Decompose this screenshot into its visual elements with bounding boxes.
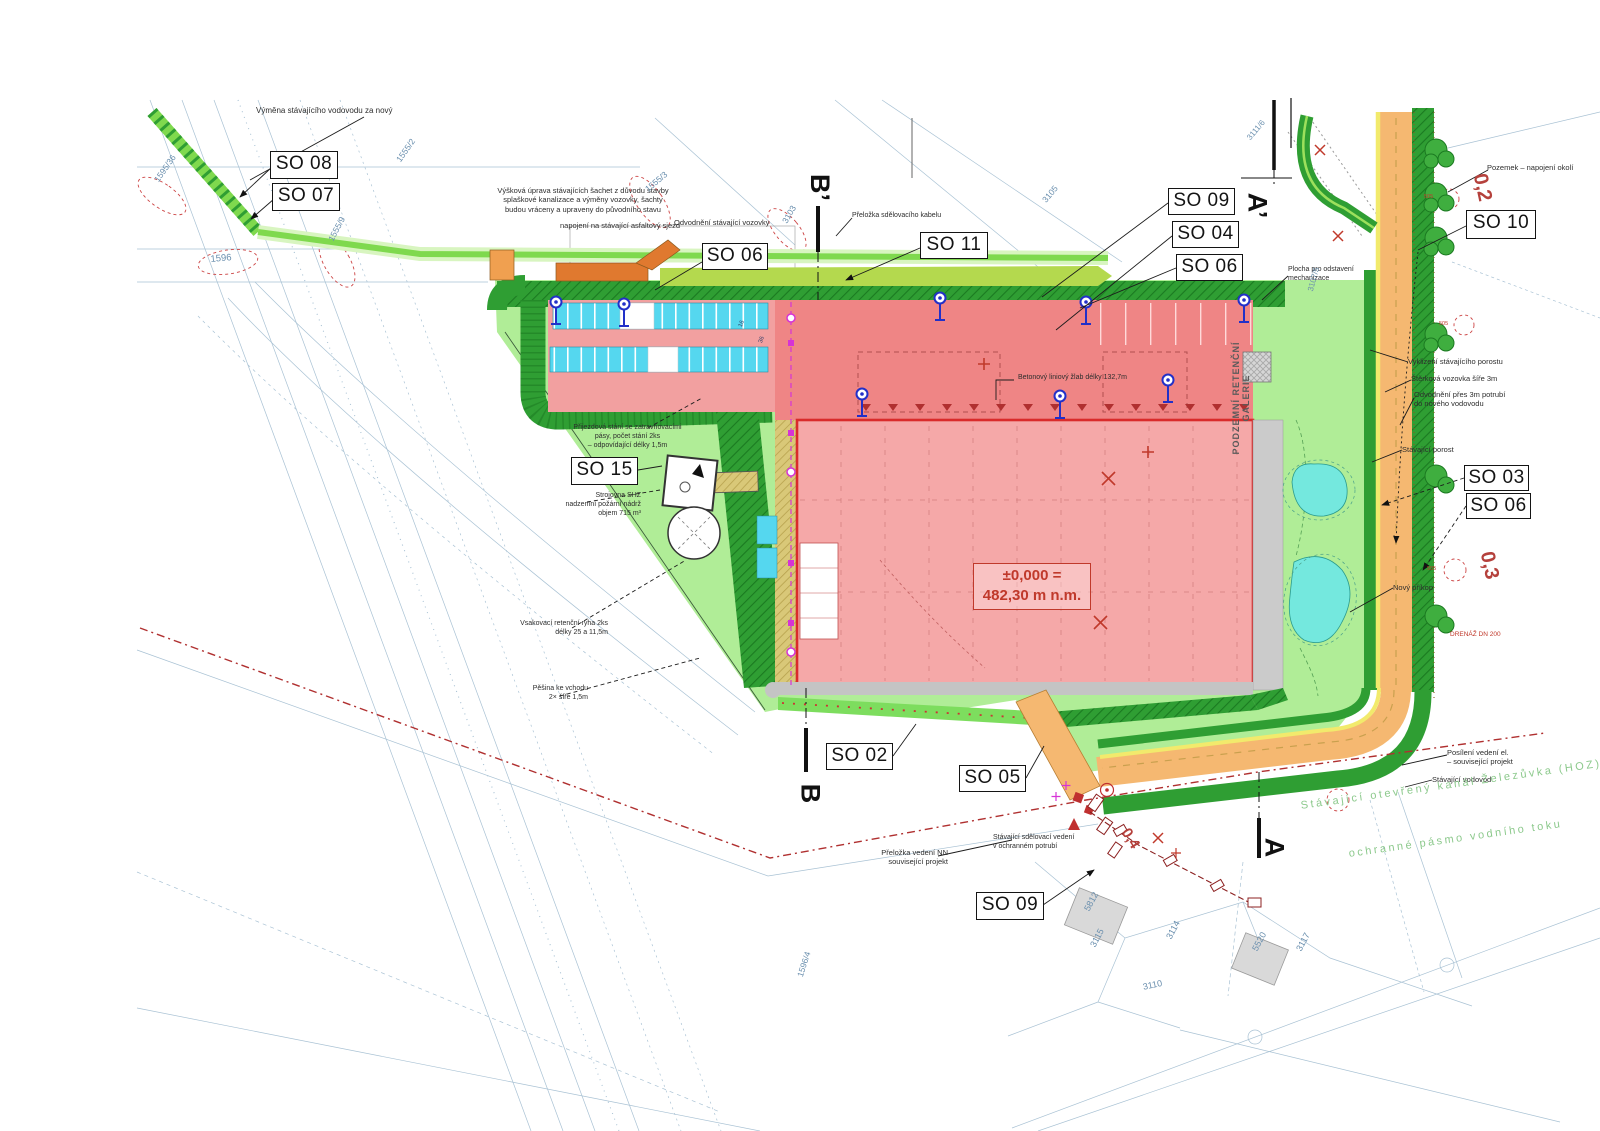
parcel-number: 3114 (1164, 919, 1182, 941)
annotation: 16 (738, 320, 747, 329)
building-vertical-text: PODZEMNÍ RETENČNÍ GALERIE (1231, 317, 1251, 479)
annotation: Přeložka sdělovacího kabelu (852, 212, 941, 221)
elevation-line1: ±0,000 = (977, 566, 1087, 586)
annotation-line: 505 (1439, 321, 1448, 328)
annotation: Výměna stávajícího vodovodu za nový (256, 106, 393, 116)
parcel-number: 3110 (1142, 978, 1163, 992)
annotation-line: objem 715 m³ (545, 510, 641, 519)
parcel-number: 1555/9 (326, 215, 347, 243)
parcel-number: 1596/4 (795, 950, 813, 978)
annotation: Posílení vedení el.– související projekt (1447, 748, 1513, 767)
annotation: 505 (1424, 194, 1433, 201)
annotation-line: Pozemek – napojení okolí (1487, 163, 1573, 172)
parcel-number: 1596 (210, 252, 232, 265)
label-so-09b: SO 09 (976, 892, 1044, 920)
annotation-line: – související projekt (1447, 757, 1513, 766)
annotation: Odvodnění přes 3m potrubído nového vodov… (1414, 390, 1505, 409)
annotation-line: 36 (758, 336, 767, 345)
label-so-02: SO 02 (826, 743, 893, 770)
annotation-line: Přeložka sdělovacího kabelu (852, 212, 941, 221)
section-marker-b-prime: B’ (804, 174, 835, 201)
watercourse-note: ochranné pásmo vodního toku (1348, 818, 1563, 860)
annotation: DRENÁŽ DN 200 (1450, 631, 1501, 639)
annotation-line: Odvodnění přes 3m potrubí (1414, 390, 1505, 399)
label-so-06c: SO 06 (1466, 493, 1531, 519)
annotation: napojení na stávající asfaltový sjezd (560, 221, 680, 230)
annotation: Pěšina ke vchodu2× šíře 1,5m (468, 685, 588, 703)
parcel-number: 3117 (1294, 931, 1312, 953)
label-overlay: ±0,000 = 482,30 m n.m. PODZEMNÍ RETENČNÍ… (0, 0, 1600, 1131)
annotation-line: Nový příkop (1393, 583, 1433, 592)
parcel-number: 3105 (1040, 184, 1060, 205)
elevation-line2: 482,30 m n.m. (977, 586, 1087, 606)
annotation-line: v ochranném potrubí (993, 843, 1074, 852)
annotation-line: 2× šíře 1,5m (468, 694, 588, 703)
annotation-line: Výměna stávajícího vodovodu za nový (256, 106, 393, 116)
annotation-line: Posílení vedení el. (1447, 748, 1513, 757)
parcel-number: 3111/6 (1245, 118, 1267, 142)
annotation: Vsakovací retenční rýha 2ksdélky 25 a 11… (468, 620, 608, 638)
section-marker-a: A (1258, 838, 1289, 858)
annotation: Pozemek – napojení okolí (1487, 163, 1573, 172)
annotation: Štěrková vozovka šíře 3m (1411, 374, 1497, 383)
annotation-line: 505 (1427, 566, 1436, 573)
annotation: Strojovna SHZnadzemní požární nádržobjem… (545, 492, 641, 518)
annotation-line: Vsakovací retenční rýha 2ks (468, 620, 608, 629)
annotation: Odvodnění stávající vozovky (674, 218, 769, 227)
elevation-note: ±0,000 = 482,30 m n.m. (973, 563, 1091, 610)
annotation-line: 16 (738, 320, 747, 329)
parcel-number: 5812 (1082, 890, 1100, 912)
label-so-07: SO 07 (272, 183, 340, 211)
annotation: 505 (1427, 566, 1436, 573)
annotation-line: budou vráceny a upraveny do původního st… (478, 205, 688, 214)
annotation-line: Strojovna SHZ (545, 492, 641, 501)
annotation: Stávající porost (1402, 445, 1454, 454)
annotation-line: délky 25 a 11,5m (468, 629, 608, 638)
annotation-line: napojení na stávající asfaltový sjezd (560, 221, 680, 230)
annotation-line: Stávající porost (1402, 445, 1454, 454)
annotation-line: Betonový liniový žlab délky 132,7m (1018, 374, 1127, 383)
label-so-10: SO 10 (1466, 210, 1536, 239)
annotation-line: do nového vodovodu (1414, 399, 1505, 408)
parcel-number: 3103 (780, 204, 798, 225)
annotation: 505 (1439, 321, 1448, 328)
annotation-line: nadzemní požární nádrž (545, 501, 641, 510)
red-note: 0,4 (1118, 825, 1143, 852)
label-so-06b: SO 06 (1176, 254, 1243, 281)
label-so-03: SO 03 (1464, 465, 1529, 491)
annotation-line: související projekt (864, 857, 948, 866)
annotation: Nový příkop (1393, 583, 1433, 592)
label-so-06a: SO 06 (702, 243, 768, 270)
label-so-08: SO 08 (270, 151, 338, 179)
label-so-09a: SO 09 (1168, 188, 1235, 215)
annotation-line: Přeložka vedení NN (864, 848, 948, 857)
annotation-line: Plocha pro odstavení (1288, 266, 1354, 275)
label-so-11: SO 11 (920, 232, 988, 259)
annotation-line: mechanizace (1288, 275, 1354, 284)
annotation-line: Stávající sdělovací vedení (993, 834, 1074, 843)
annotation-line: DRENÁŽ DN 200 (1450, 631, 1501, 639)
annotation: Přeložka vedení NNsouvisející projekt (864, 848, 948, 867)
label-so-05: SO 05 (959, 765, 1026, 792)
annotation: Betonový liniový žlab délky 132,7m (1018, 374, 1127, 383)
annotation-line: Přijezdová stání se zatravňovacími (540, 424, 715, 433)
annotation-line: Pěšina ke vchodu (468, 685, 588, 694)
annotation: Vyklizení stávajícího porostu (1408, 357, 1503, 366)
red-note: 0,2 (1468, 172, 1496, 204)
label-so-04: SO 04 (1172, 221, 1239, 248)
annotation-line: pásy, počet stání 2ks (540, 433, 715, 442)
parcel-number: 5520 (1250, 930, 1268, 952)
annotation: 36 (758, 336, 767, 345)
annotation-line: Vyklizení stávajícího porostu (1408, 357, 1503, 366)
section-marker-b: B (794, 784, 825, 804)
annotation-line: Odvodnění stávající vozovky (674, 218, 769, 227)
red-note: 0,3 (1475, 550, 1503, 582)
annotation: Výšková úprava stávajících šachet z důvo… (478, 186, 688, 214)
annotation-line: 505 (1424, 194, 1433, 201)
site-plan-page: ±0,000 = 482,30 m n.m. PODZEMNÍ RETENČNÍ… (0, 0, 1600, 1131)
annotation-line: – odpovídající délky 1,5m (540, 442, 715, 451)
annotation: Stávající sdělovací vedenív ochranném po… (993, 834, 1074, 852)
section-marker-a-prime: A’ (1241, 193, 1272, 219)
annotation: Přijezdová stání se zatravňovacímipásy, … (540, 424, 715, 450)
label-so-15: SO 15 (571, 457, 638, 485)
parcel-number: 1555/2 (394, 137, 417, 164)
annotation-line: Štěrková vozovka šíře 3m (1411, 374, 1497, 383)
parcel-number: 1595/36 (152, 153, 178, 184)
annotation-line: splaškové kanalizace a výměny vozovky, š… (478, 195, 688, 204)
parcel-number: 3115 (1088, 927, 1106, 949)
